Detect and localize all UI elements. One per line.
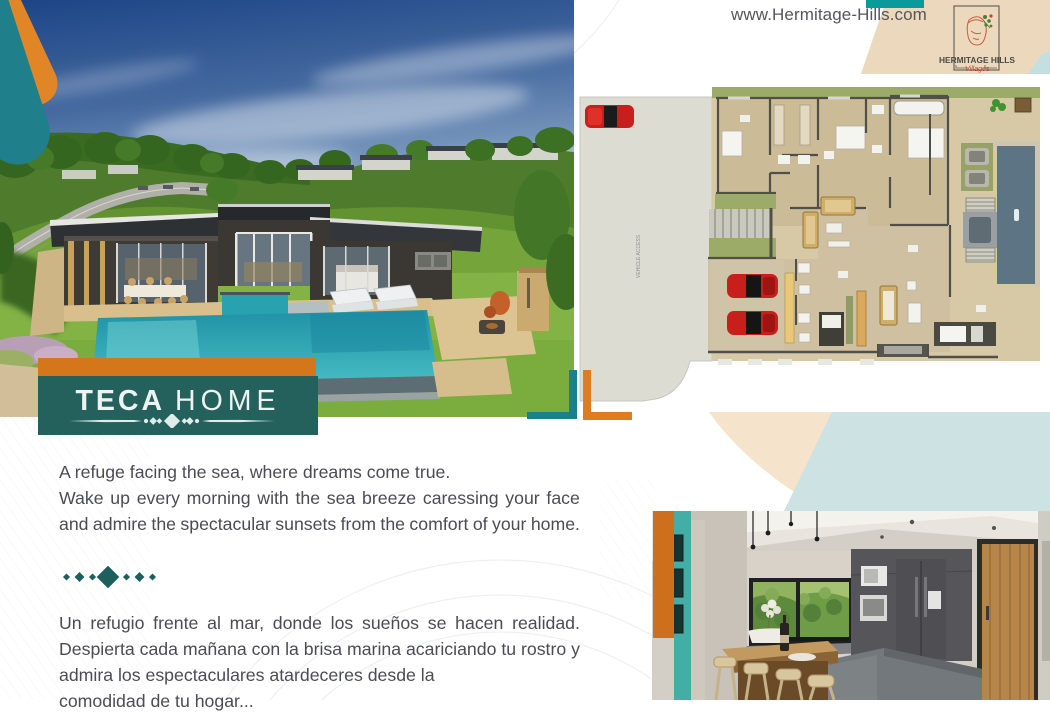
svg-text:HERMITAGE HILLS: HERMITAGE HILLS (939, 56, 1016, 65)
svg-text:VEHICLE ACCESS: VEHICLE ACCESS (636, 234, 642, 278)
svg-text:Villages: Villages (965, 66, 990, 73)
